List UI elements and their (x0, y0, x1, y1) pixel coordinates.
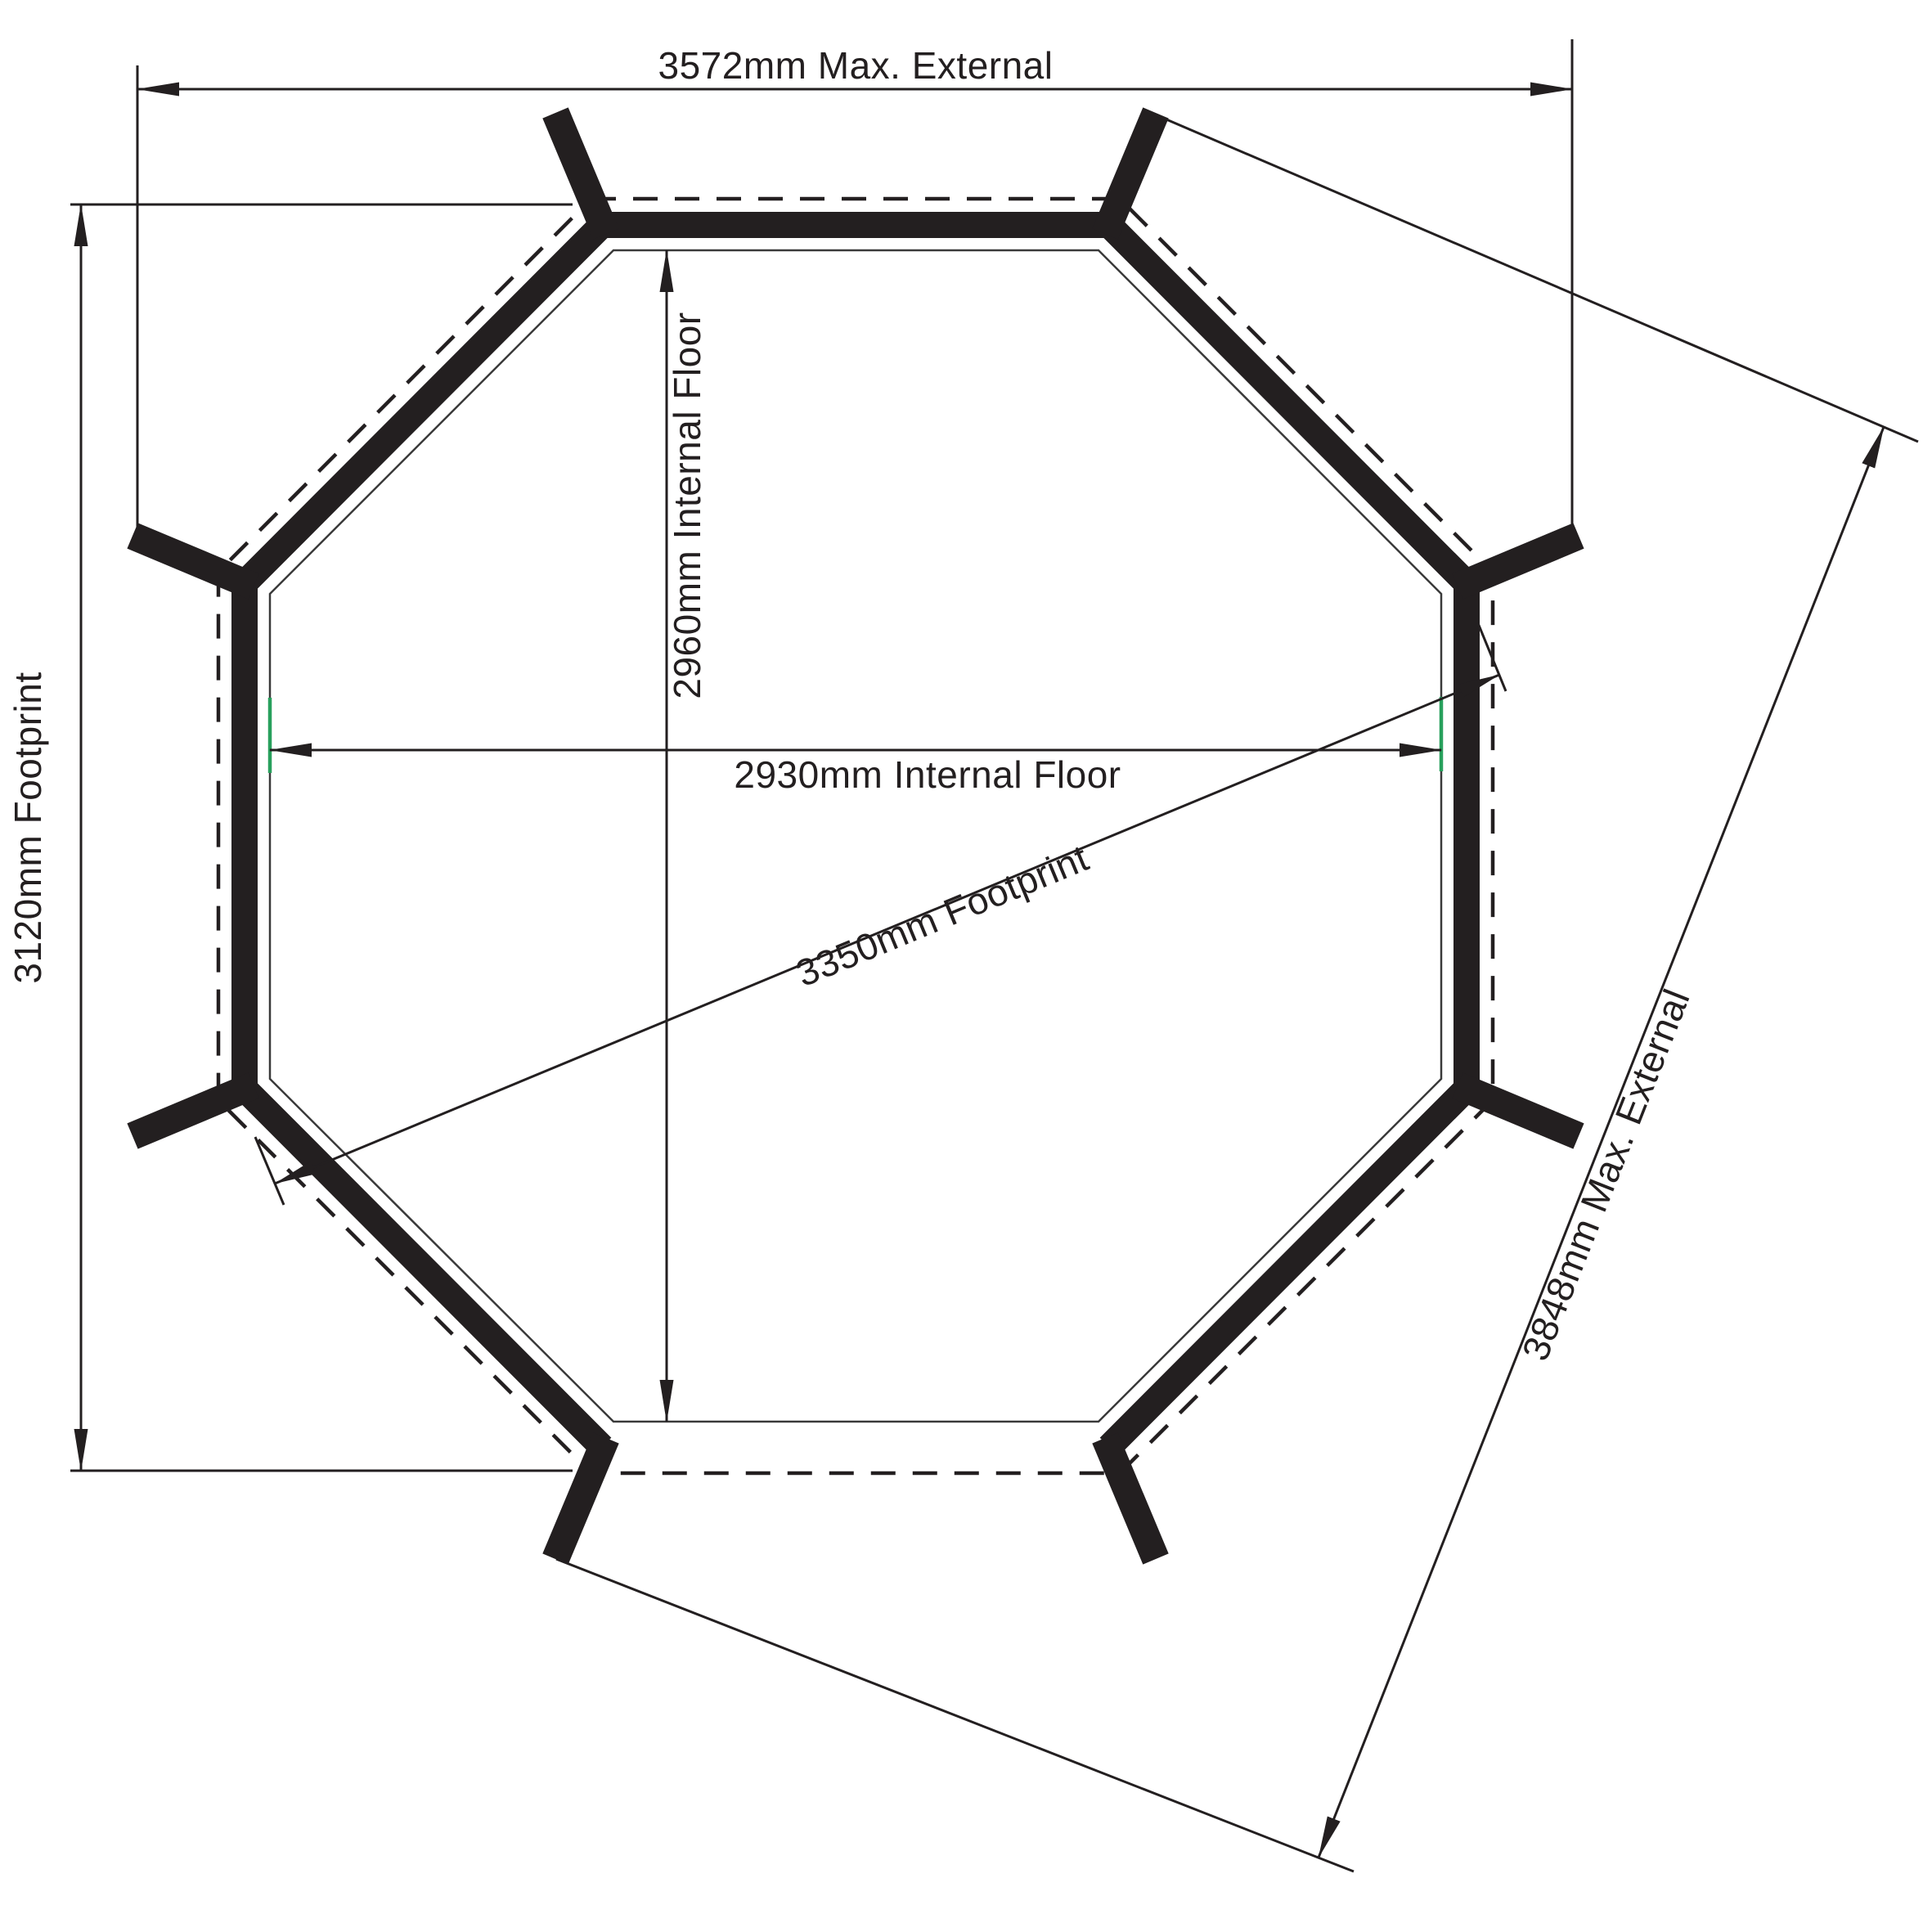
dimension-label-left-footprint-height: 3120mm Footprint (7, 672, 49, 983)
extension-line-bottom (556, 1559, 1354, 1871)
corner-post-ene (1458, 536, 1579, 586)
dimension-external-diagonal: 3848mm Max. External (556, 115, 1918, 1871)
drawing-page: 3572mm Max. External 3120mm Footprint 29… (0, 0, 1932, 1932)
footprint-dashed-outline (218, 199, 1493, 1473)
corner-post-wnw (133, 536, 254, 586)
corner-post-ne (1105, 113, 1156, 234)
dimension-label-footprint-diagonal: 3350mm Footprint (790, 836, 1094, 995)
dimension-label-internal-floor-width: 2930mm Internal Floor (734, 753, 1121, 796)
octagon-structure (133, 113, 1579, 1559)
corner-posts (133, 113, 1579, 1559)
extension-tick-left (255, 1137, 284, 1205)
corner-post-wsw (133, 1085, 254, 1136)
dimension-label-external-diagonal: 3848mm Max. External (1513, 983, 1697, 1366)
wall-outline (245, 225, 1467, 1447)
dimension-left-footprint-height: 3120mm Footprint (7, 204, 573, 1471)
corner-post-se (1105, 1438, 1156, 1559)
corner-post-nw (555, 113, 606, 234)
dimension-label-top-external-width: 3572mm Max. External (658, 44, 1054, 87)
corner-post-ese (1458, 1085, 1579, 1136)
corner-post-sw (555, 1438, 606, 1559)
dimension-internal-floor-height: 2960mm Internal Floor (666, 250, 708, 1422)
dimension-label-internal-floor-height: 2960mm Internal Floor (666, 312, 708, 699)
dimension-footprint-diagonal: 3350mm Footprint (255, 623, 1506, 1205)
internal-floor-outline (270, 250, 1441, 1422)
floor-plan-svg: 3572mm Max. External 3120mm Footprint 29… (0, 0, 1932, 1932)
